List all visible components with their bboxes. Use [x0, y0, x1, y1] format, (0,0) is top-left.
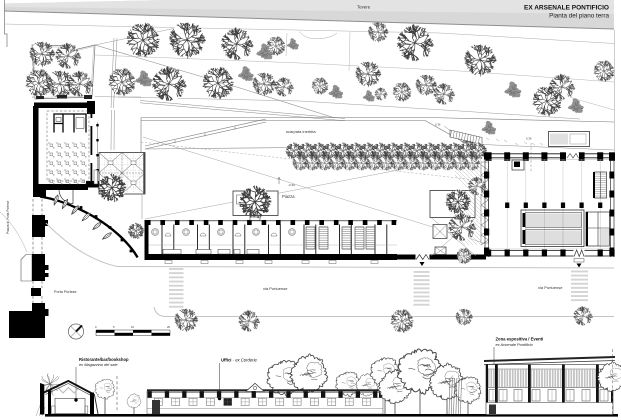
svg-text:scarpata inerbita: scarpata inerbita — [286, 129, 316, 134]
svg-text:Piazza: Piazza — [282, 194, 295, 199]
svg-text:Zona espositiva / Eventi: Zona espositiva / Eventi — [496, 337, 544, 342]
svg-text:via Portuense: via Portuense — [263, 286, 288, 291]
svg-text:ex Arsenale Pontificio: ex Arsenale Pontificio — [496, 342, 534, 347]
svg-text:Tevere: Tevere — [357, 5, 371, 10]
svg-text:0.36: 0.36 — [526, 137, 532, 141]
svg-text:ex Magazzino del sale: ex Magazzino del sale — [79, 362, 118, 367]
svg-text:Piazza di Porta Portese: Piazza di Porta Portese — [6, 200, 10, 234]
svg-text:Uffici - ex Corderie: Uffici - ex Corderie — [221, 358, 258, 363]
svg-text:via Portuense: via Portuense — [538, 285, 563, 290]
svg-text:20: 20 — [167, 325, 171, 329]
svg-text:-0.36: -0.36 — [288, 183, 295, 187]
svg-text:10: 10 — [131, 325, 135, 329]
svg-text:0.36: 0.36 — [435, 123, 441, 127]
svg-text:Porta Portese: Porta Portese — [54, 290, 77, 294]
svg-text:Pianta del piano terra: Pianta del piano terra — [549, 13, 609, 20]
svg-text:EX ARSENALE PONTIFICIO: EX ARSENALE PONTIFICIO — [524, 5, 609, 12]
